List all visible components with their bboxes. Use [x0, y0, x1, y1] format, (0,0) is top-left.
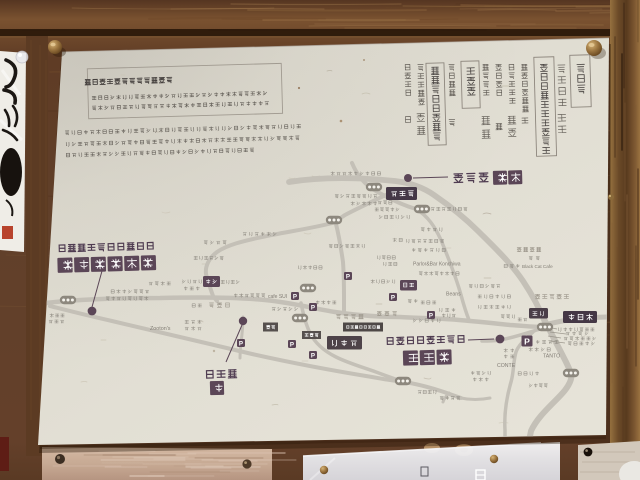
svg-text:Zooton's: Zooton's — [150, 326, 171, 332]
svg-text:P: P — [311, 353, 315, 360]
svg-text:P: P — [239, 341, 243, 348]
svg-text:P: P — [391, 295, 395, 302]
svg-text:P: P — [293, 294, 297, 301]
svg-text:TANTO: TANTO — [543, 354, 560, 360]
svg-text:P: P — [290, 342, 294, 349]
svg-text:cafe SUI: cafe SUI — [268, 294, 287, 300]
svg-text:P: P — [524, 337, 530, 347]
svg-text:Beans: Beans — [446, 292, 461, 298]
svg-text:P: P — [429, 313, 433, 320]
svg-text:P: P — [311, 305, 315, 312]
svg-text:CONTE: CONTE — [497, 363, 516, 369]
svg-text:P: P — [346, 274, 350, 281]
svg-text:Black Cat Cafe: Black Cat Cafe — [522, 264, 553, 269]
svg-text:Parlor&Bar Konchiwa: Parlor&Bar Konchiwa — [413, 262, 461, 268]
